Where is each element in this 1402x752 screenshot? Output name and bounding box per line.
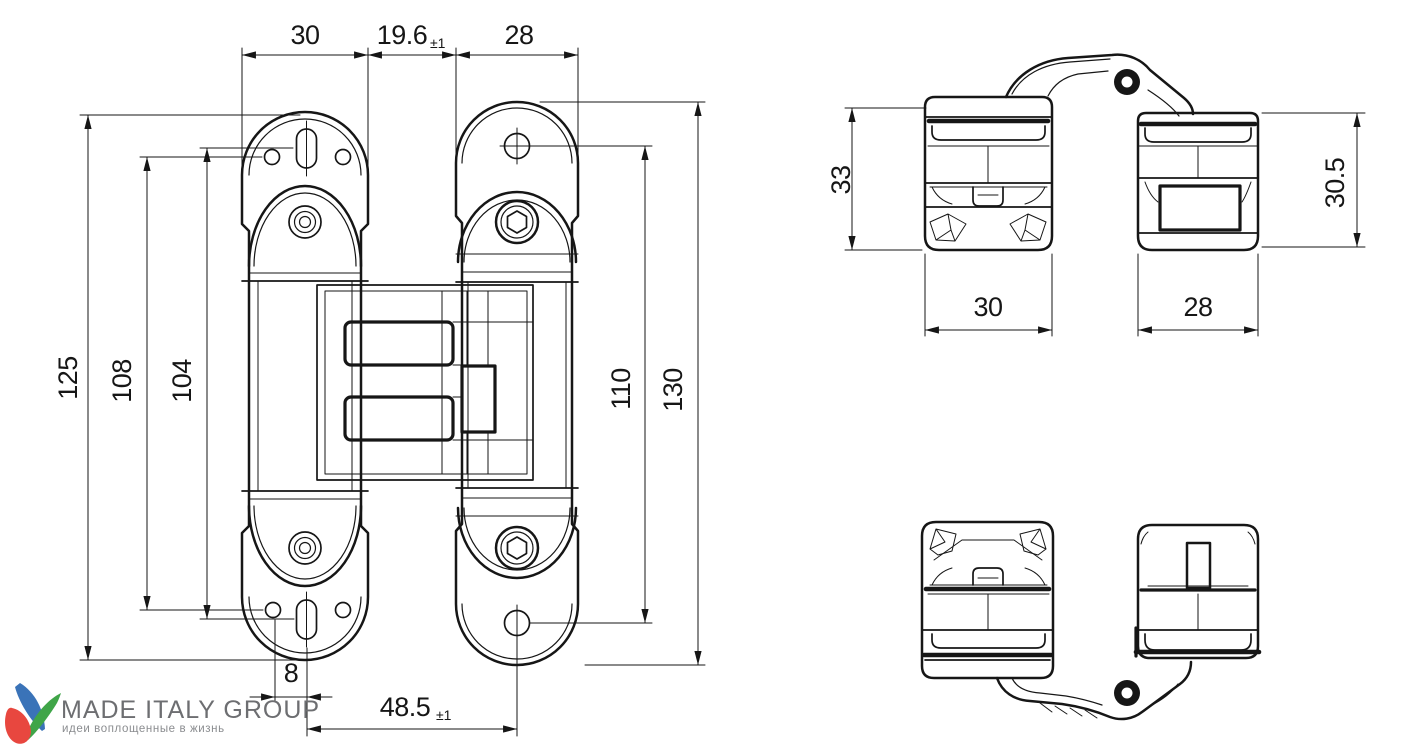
dim-bottom-span-tol: ±1 [436,707,452,723]
dim-left-total: 125 [53,356,83,400]
dim-left-holes: 108 [107,359,137,403]
hinge-drawing: 30 19.6 ±1 28 125 108 104 110 130 8 48.5… [0,0,1402,752]
dim-top-left-width: 30 [290,20,319,50]
dim-side-left-width: 30 [973,292,1002,322]
dim-left-slots: 104 [167,359,197,403]
side-open-arm [1006,55,1193,116]
side-view-dimensions: 33 30.5 30 28 [826,108,1365,336]
logo-title: MADE ITALY GROUP [61,696,320,725]
pivot-hole [1122,688,1133,699]
dim-top-gap-tol: ±1 [430,35,446,51]
dim-bottom-span: 48.5 [380,692,431,722]
technical-drawing-page: 30 19.6 ±1 28 125 108 104 110 130 8 48.5… [0,0,1402,752]
front-view-dimensions: 30 19.6 ±1 28 125 108 104 110 130 8 48.5… [53,20,705,736]
dim-side-left-height: 33 [826,165,856,194]
side-view-open: 33 30.5 30 28 [826,55,1365,336]
dim-right-holes: 110 [606,368,636,410]
logo-subtitle: идеи воплощенные в жизнь [62,723,225,735]
front-right-plate [456,102,578,665]
side-closed-left-block [922,522,1053,678]
logo-icon [2,680,62,748]
front-hinge-mechanism [317,285,533,480]
side-view-closed [922,522,1259,719]
pivot-hole [1122,77,1133,88]
side-open-right-block [1138,113,1258,250]
dim-side-right-height: 30.5 [1320,158,1350,209]
dim-top-right-width: 28 [504,20,533,50]
side-closed-right-block [1136,525,1259,658]
dim-top-gap: 19.6 [377,20,428,50]
dim-right-total: 130 [658,368,688,412]
dim-side-right-width: 28 [1183,292,1212,322]
side-closed-arm [997,662,1191,719]
front-left-plate [242,112,368,660]
brand-logo: MADE ITALY GROUP идеи воплощенные в жизн… [0,676,330,752]
side-open-left-block [925,97,1052,250]
